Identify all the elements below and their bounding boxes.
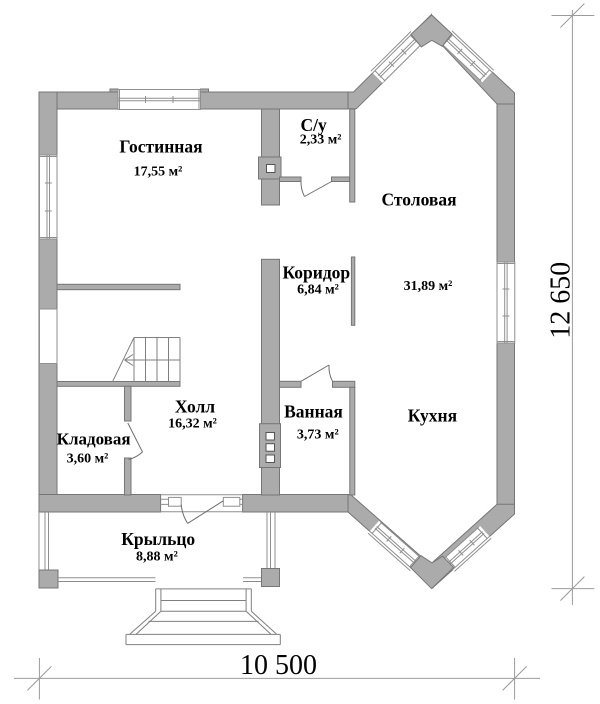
svg-text:3,60 м²: 3,60 м² (67, 452, 109, 467)
svg-text:3,73 м²: 3,73 м² (297, 428, 339, 443)
svg-text:16,32 м²: 16,32 м² (168, 417, 217, 432)
svg-text:31,89 м²: 31,89 м² (404, 279, 453, 294)
svg-text:17,55 м²: 17,55 м² (134, 165, 183, 180)
svg-text:Столовая: Столовая (381, 190, 456, 210)
svg-text:Кухня: Кухня (408, 406, 457, 426)
svg-text:Коридор: Коридор (282, 263, 350, 283)
svg-text:2,33 м²: 2,33 м² (300, 133, 342, 148)
svg-text:Ванная: Ванная (284, 402, 343, 422)
svg-text:8,88 м²: 8,88 м² (136, 549, 178, 564)
svg-text:6,84 м²: 6,84 м² (297, 283, 339, 298)
svg-text:Гостинная: Гостинная (119, 136, 202, 156)
svg-text:Кладовая: Кладовая (57, 429, 131, 448)
svg-text:10 500: 10 500 (240, 650, 317, 681)
svg-text:12 650: 12 650 (546, 262, 577, 339)
svg-text:Холл: Холл (175, 397, 215, 417)
svg-text:Крыльцо: Крыльцо (121, 529, 195, 549)
